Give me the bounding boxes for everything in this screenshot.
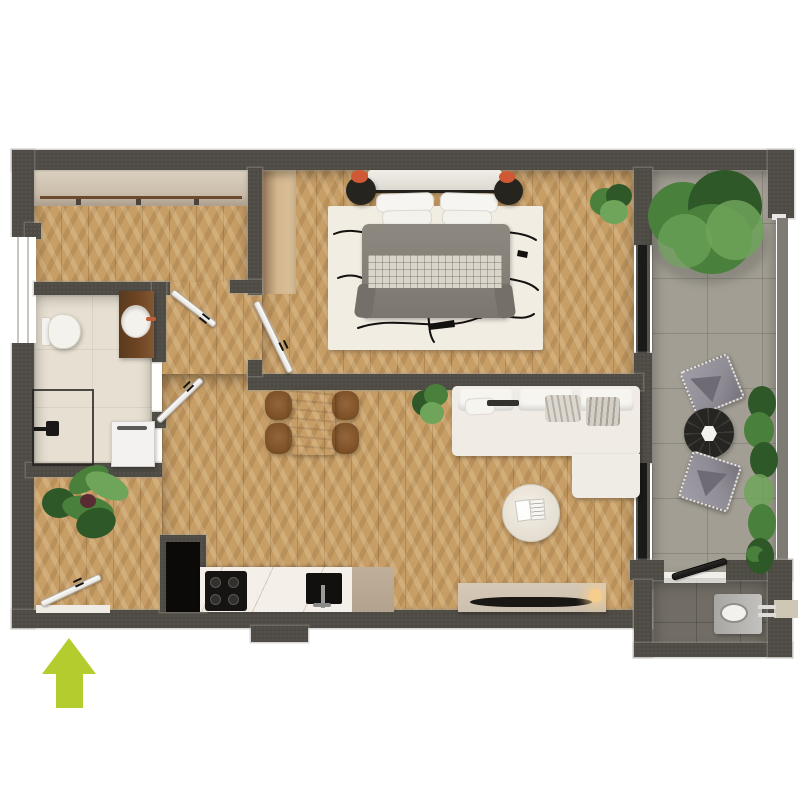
- wall-utility-top-left: [630, 560, 664, 580]
- burner-icon: [210, 577, 221, 588]
- tree-foliage: [706, 200, 764, 260]
- balcony-tree: [648, 170, 768, 280]
- sofa-tray: [487, 400, 519, 406]
- living-plant: [412, 384, 452, 428]
- dining-chair: [332, 423, 359, 454]
- chair-fold: [690, 465, 727, 501]
- dining-chair: [332, 391, 359, 420]
- hedge-foliage: [748, 504, 776, 542]
- hedge-foliage: [750, 442, 778, 478]
- chair-fold: [690, 368, 729, 407]
- wall-pier: [251, 626, 308, 642]
- table-lamp: [589, 589, 602, 602]
- tree-foliage: [658, 214, 712, 268]
- utility-corner-plant: [746, 546, 776, 568]
- burner-icon: [228, 577, 239, 588]
- hanger-icon: [76, 199, 81, 205]
- dining-chair: [265, 423, 292, 454]
- utility-fixture-bowl: [720, 603, 748, 623]
- balcony-railing: [777, 218, 788, 562]
- bedroom-corner-plant: [588, 184, 636, 228]
- burner-icon: [210, 594, 221, 605]
- wall-left: [12, 150, 34, 628]
- sofa-throw: [545, 395, 581, 422]
- plant-foliage: [600, 200, 628, 224]
- sink-faucet-handle: [313, 603, 331, 607]
- hall-wardrobe: [34, 168, 248, 206]
- utility-pipe: [758, 605, 776, 609]
- wardrobe-rail: [40, 196, 242, 199]
- wall-right-top: [768, 150, 794, 218]
- sofa-throw: [586, 397, 620, 426]
- wall-niche-stub: [230, 280, 262, 293]
- kitchen-tall-unit: [166, 542, 200, 612]
- outside-step: [774, 600, 798, 618]
- wall-bathroom-right: [152, 282, 166, 362]
- shower-pipe: [34, 427, 48, 431]
- wall-top: [12, 150, 792, 170]
- kitchen-beige-cabinet: [352, 567, 394, 612]
- table-plate: [701, 426, 717, 441]
- plant-center: [80, 494, 96, 508]
- plant-foliage: [420, 402, 444, 424]
- bed-checkered-blanket: [368, 255, 502, 288]
- coffee-table-book: [529, 499, 545, 521]
- left-window: [10, 237, 36, 343]
- dining-chair: [265, 391, 292, 420]
- tv: [470, 597, 592, 607]
- toilet-bowl: [48, 314, 81, 349]
- sofa-chaise: [572, 454, 640, 498]
- wall-hall-bedroom: [248, 168, 262, 295]
- vanity-sink: [121, 305, 151, 338]
- entrance-arrow-head: [42, 638, 96, 674]
- cooktop: [205, 571, 247, 611]
- vanity-faucet: [146, 317, 156, 321]
- bed-headboard: [368, 170, 502, 193]
- utility-pipe: [758, 613, 776, 617]
- plant-foliage: [758, 550, 774, 564]
- bedroom-wardrobe-niche: [262, 170, 296, 294]
- entry-plant: [40, 466, 132, 546]
- dining-table: [289, 389, 335, 455]
- balcony-side-table: [684, 408, 734, 458]
- hanger-icon: [194, 199, 199, 205]
- burner-icon: [228, 594, 239, 605]
- entrance-threshold: [36, 605, 110, 613]
- floor-plan: [0, 0, 800, 800]
- entrance-arrow-stem: [56, 672, 83, 708]
- washing-machine-panel: [117, 426, 147, 430]
- wall-bedroom-door-stub: [248, 360, 262, 376]
- nightstand-right-accent: [499, 171, 515, 183]
- hanger-icon: [136, 199, 141, 205]
- nightstand-left-accent: [351, 170, 368, 183]
